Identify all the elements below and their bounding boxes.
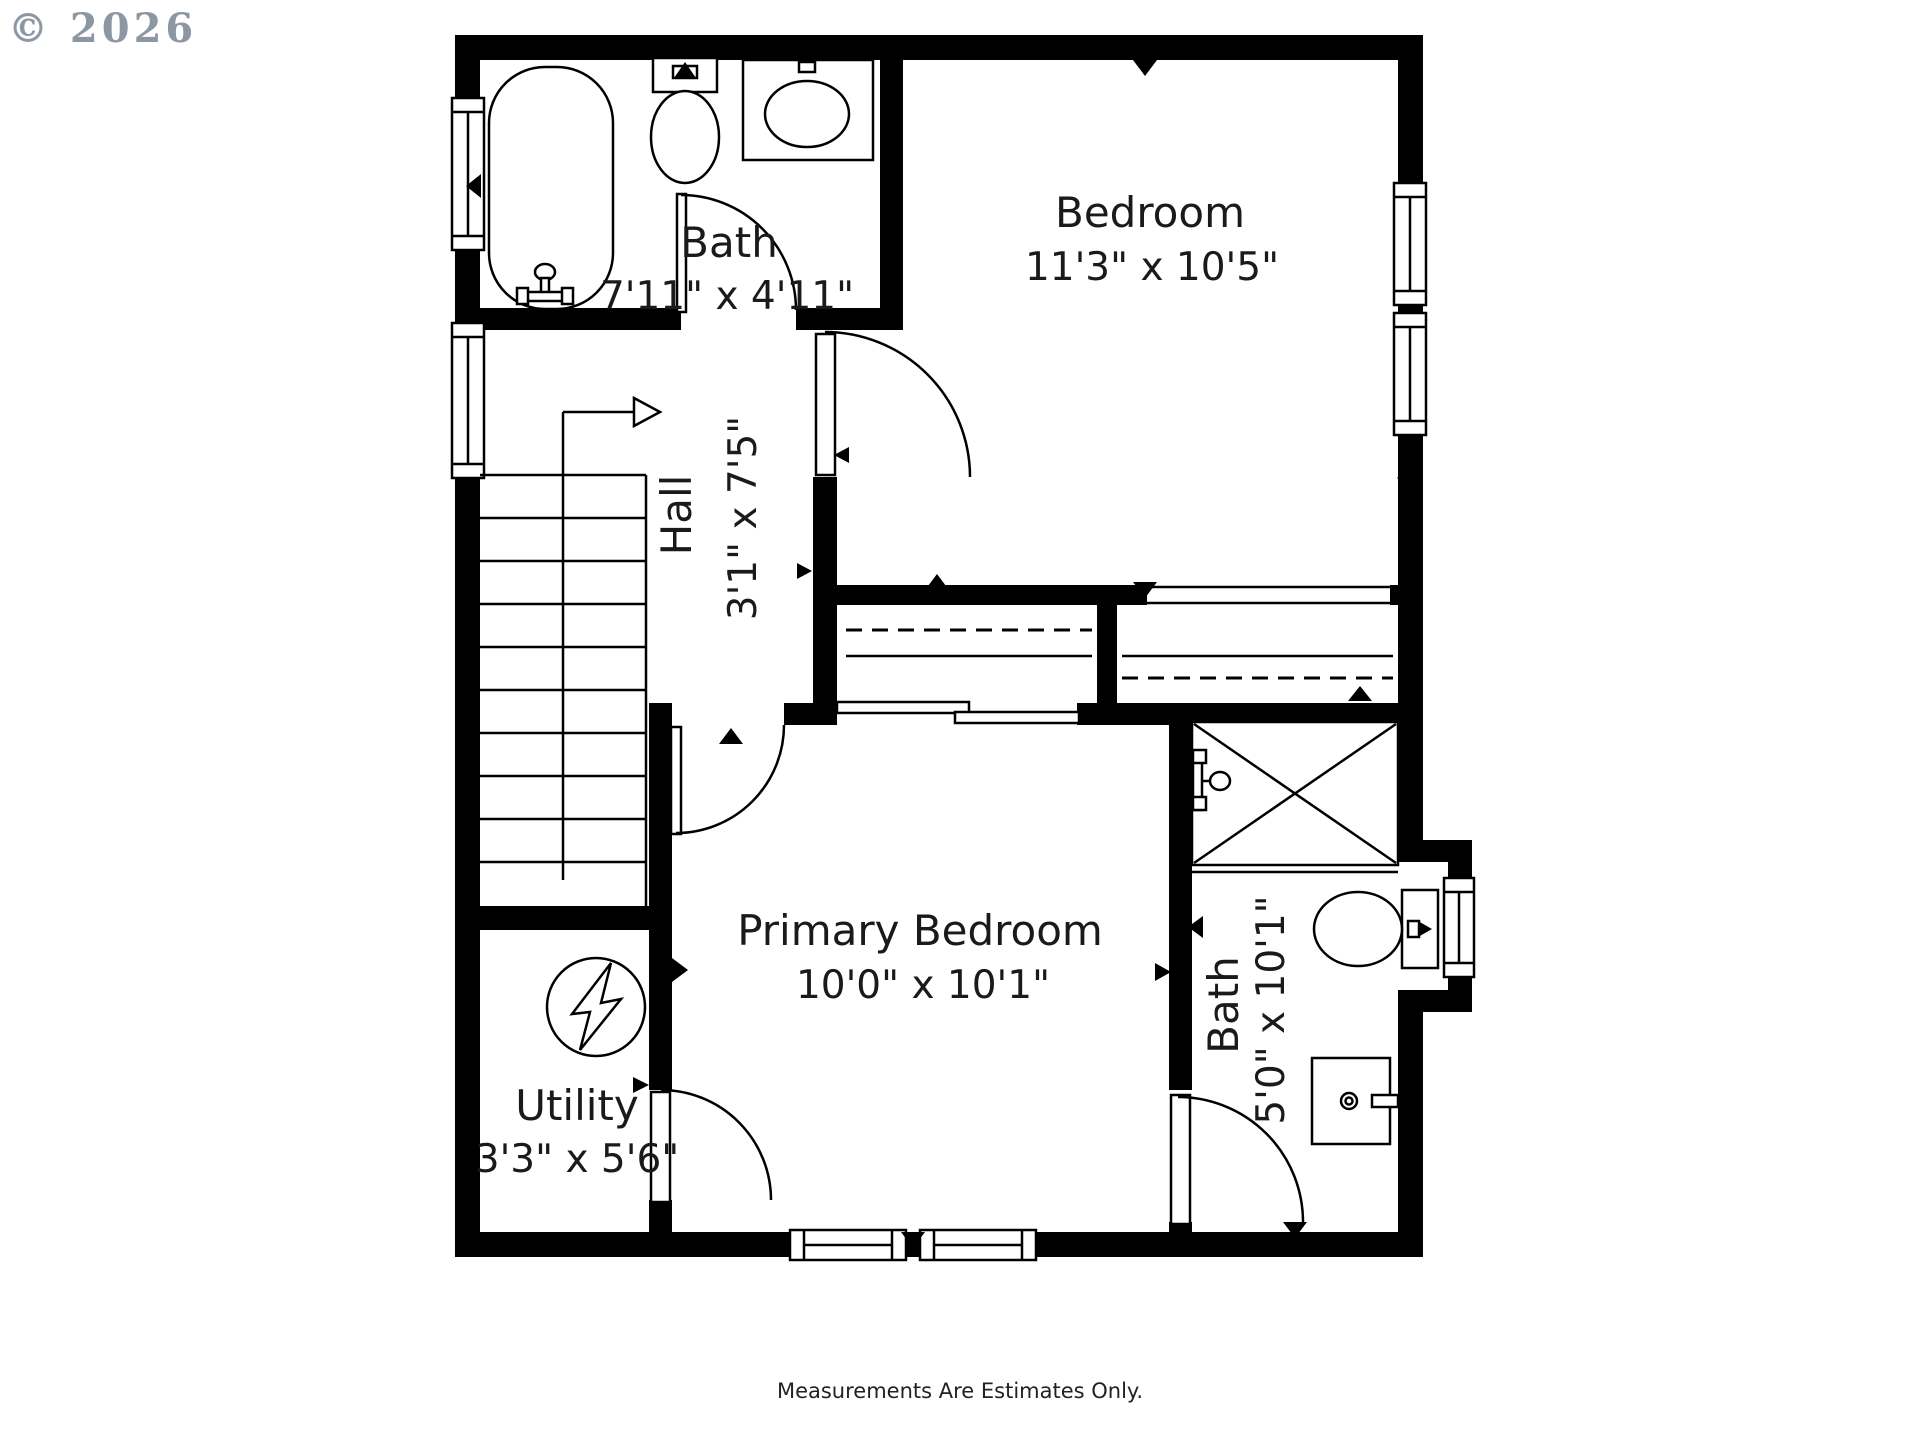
vanity-sink — [743, 60, 873, 160]
window-bedroom-upper — [1394, 183, 1426, 305]
hall-name: Hall — [652, 475, 701, 556]
utility-dims: 3'3" x 5'6" — [475, 1137, 679, 1182]
primary-dims: 10'0" x 10'1" — [796, 963, 1050, 1008]
window-primary-right — [920, 1230, 1036, 1260]
window-left-hall — [452, 323, 484, 478]
sliding-closet-door — [837, 702, 1079, 723]
bedroom-dims: 11'3" x 10'5" — [1025, 245, 1279, 290]
stairs — [480, 398, 660, 906]
vanity-sink — [1312, 1058, 1398, 1144]
bath2-name: Bath — [1199, 956, 1248, 1054]
bathtub — [489, 67, 613, 309]
bath1-dims: 7'11" x 4'11" — [600, 274, 854, 319]
copyright-watermark: © 2026 — [8, 5, 197, 52]
shower — [1192, 722, 1398, 872]
water-heater — [547, 958, 645, 1056]
bedroom-name: Bedroom — [1055, 188, 1245, 237]
bath2-dims: 5'0" x 10'1" — [1249, 895, 1294, 1124]
footer-disclaimer: Measurements Are Estimates Only. — [777, 1379, 1143, 1403]
closet-opening-header — [1147, 587, 1390, 603]
closets — [846, 630, 1393, 678]
utility-name: Utility — [515, 1081, 639, 1130]
primary-name: Primary Bedroom — [737, 906, 1103, 955]
window-left-bath — [452, 98, 484, 250]
hall-dims: 3'1" x 7'5" — [721, 416, 766, 620]
floor-plan-drawing: Bath 7'11" x 4'11" Bedroom 11'3" x 10'5"… — [0, 0, 1920, 1440]
window-primary-left — [790, 1230, 906, 1260]
window-bath2-niche — [1444, 878, 1474, 977]
floor-plan-page: Bath 7'11" x 4'11" Bedroom 11'3" x 10'5"… — [0, 0, 1920, 1440]
bath1-name: Bath — [680, 218, 778, 267]
window-bedroom-lower — [1394, 313, 1426, 435]
